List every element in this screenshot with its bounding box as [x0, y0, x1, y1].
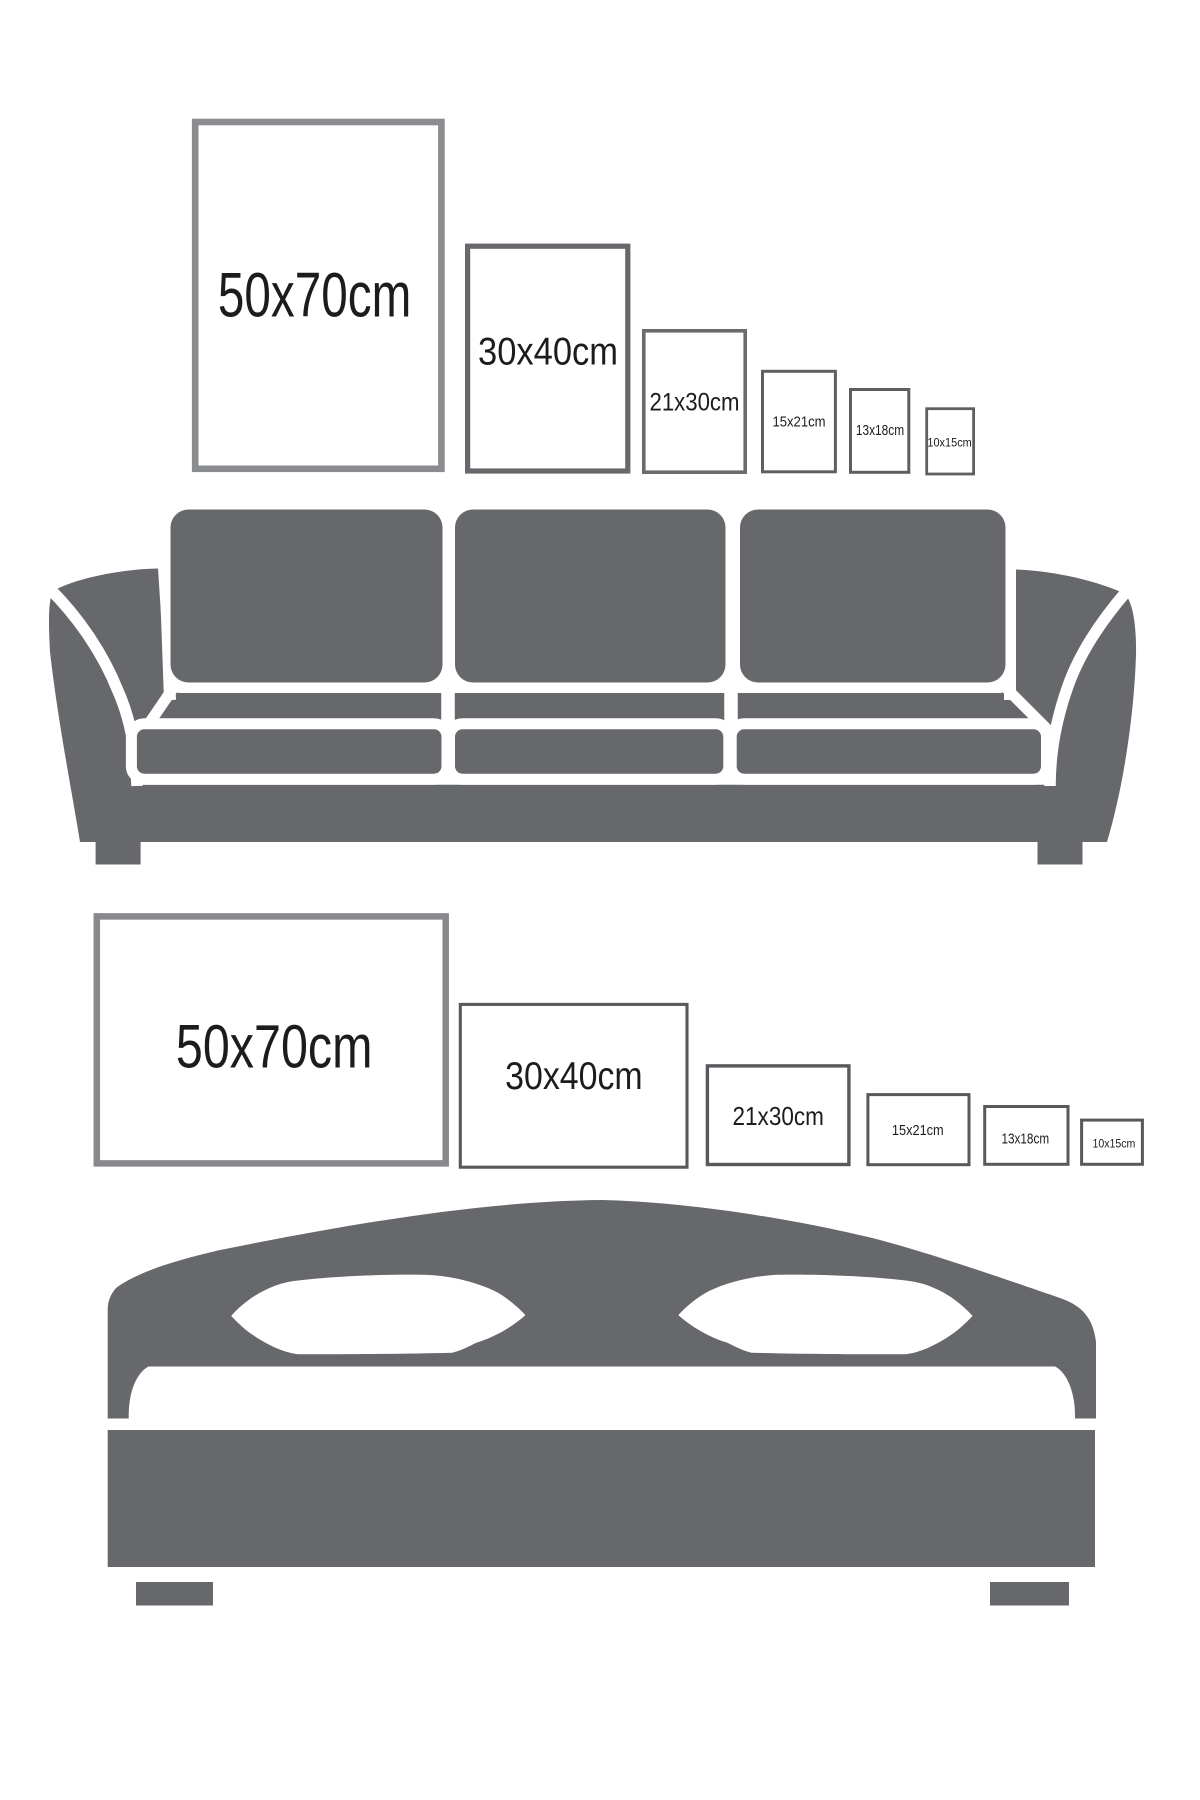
svg-text:30x40cm: 30x40cm: [505, 1054, 643, 1098]
svg-text:10x15cm: 10x15cm: [1092, 1137, 1135, 1151]
svg-text:13x18cm: 13x18cm: [856, 423, 904, 439]
svg-text:15x21cm: 15x21cm: [892, 1123, 944, 1139]
svg-text:30x40cm: 30x40cm: [478, 330, 618, 373]
svg-text:10x15cm: 10x15cm: [927, 436, 971, 450]
svg-text:50x70cm: 50x70cm: [218, 261, 411, 331]
svg-text:21x30cm: 21x30cm: [650, 389, 740, 417]
svg-text:21x30cm: 21x30cm: [733, 1101, 824, 1131]
svg-text:13x18cm: 13x18cm: [1002, 1132, 1050, 1148]
svg-text:50x70cm: 50x70cm: [176, 1013, 373, 1082]
svg-text:15x21cm: 15x21cm: [772, 415, 825, 431]
